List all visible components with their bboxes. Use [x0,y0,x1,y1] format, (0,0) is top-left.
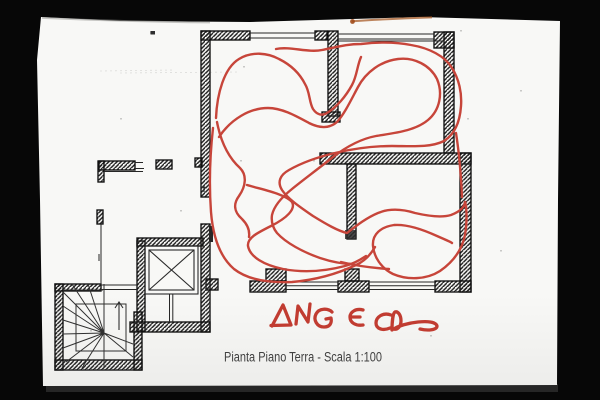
svg-text:Pianta Piano Terra - Scala 1:1: Pianta Piano Terra - Scala 1:100 [224,350,382,365]
